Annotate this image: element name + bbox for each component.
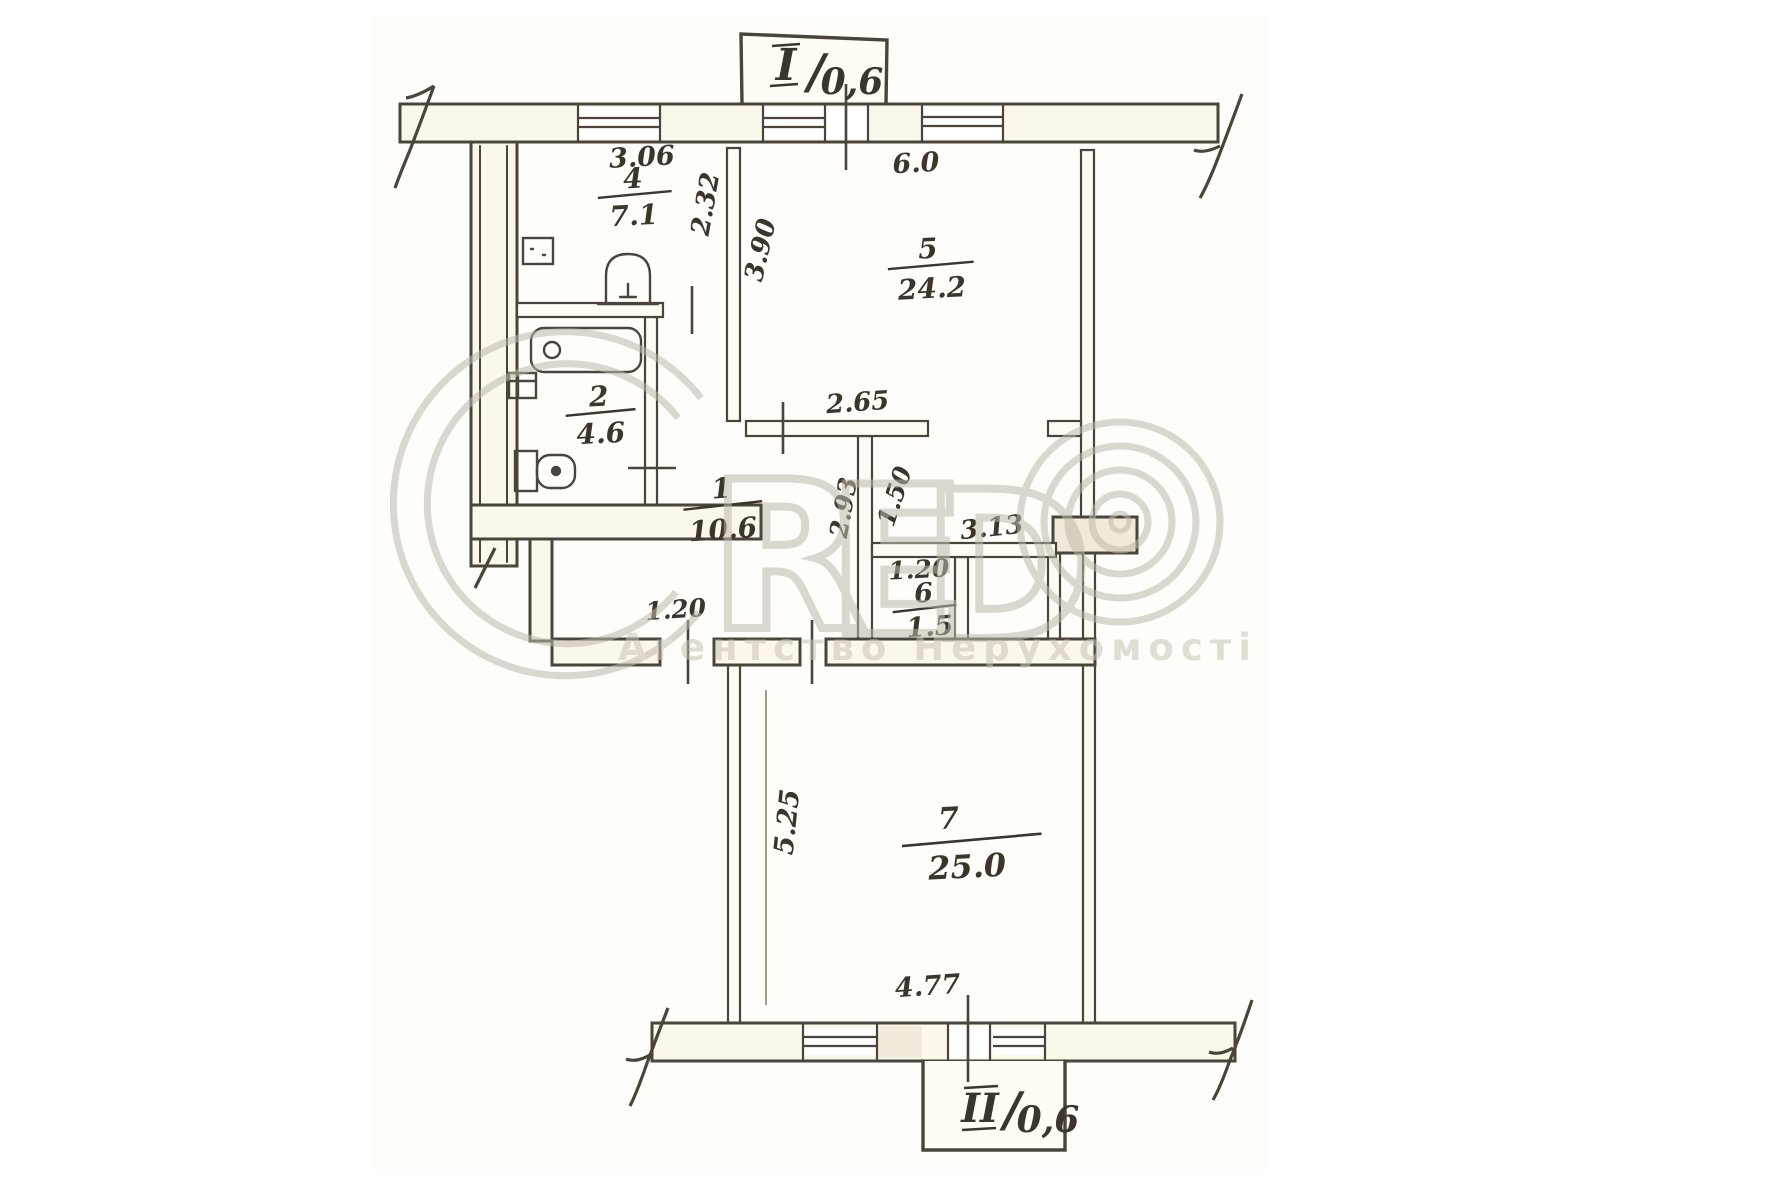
balcony-area: 0,6 [821,61,884,103]
balcony-area: 0,6 [1017,1099,1080,1141]
bedroom-left-wall [728,665,740,1025]
watermark-subtitle: Агентство Нерухомості [618,626,1258,669]
bathroom-right-wall [645,317,657,507]
dim-bedroom-width: 4.77 [894,969,962,1005]
floor-plan-drawing: I / 0,6 II / 0,6 4 7.1 2 4.6 5 [0,0,1772,1181]
balcony-numeral: II [960,1085,1000,1132]
room-area: 4.6 [576,416,626,452]
kitchen-window-icon [578,104,660,142]
living-hallway-wall [746,421,928,436]
room-number: 7 [937,801,960,837]
kitchen-living-wall [727,148,740,421]
scanned-floor-plan-page: I / 0,6 II / 0,6 4 7.1 2 4.6 5 [0,0,1772,1181]
room-number: 2 [587,380,609,414]
dim-kitchen-width: 3.06 [608,140,676,174]
wall-shaded-segment [877,1026,922,1058]
dim-living-width: 6.0 [892,147,941,180]
entry-left-wall [530,539,552,641]
room-area: 24.2 [896,270,967,307]
dim-hallway-top-width: 2.65 [824,386,890,420]
bottom-exterior-wall [652,1023,1235,1061]
living-window-icon [922,104,1003,142]
room-area: 25.0 [926,846,1007,888]
balcony-top-window-icon [763,104,825,142]
room-area: 7.1 [609,198,659,234]
room-number: 5 [917,232,938,266]
